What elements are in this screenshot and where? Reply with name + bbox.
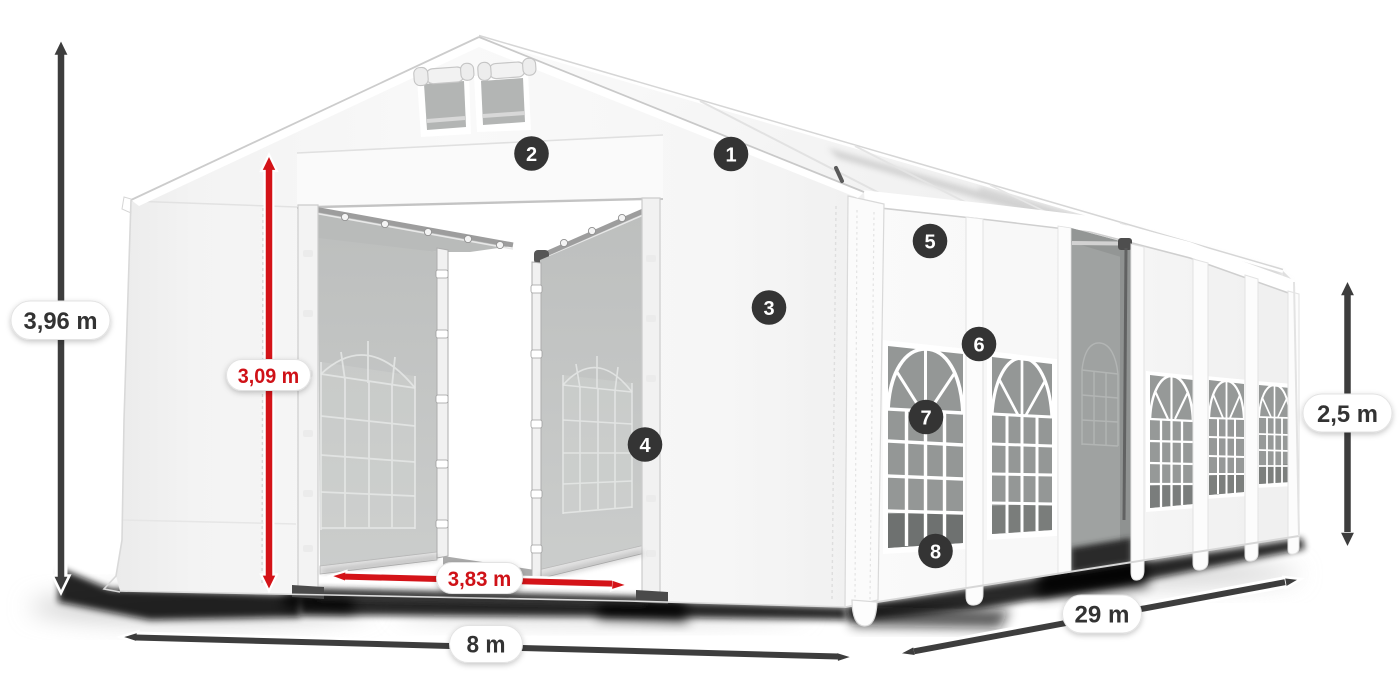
svg-text:5: 5 xyxy=(924,231,935,253)
svg-text:4: 4 xyxy=(639,435,651,457)
svg-text:3,96 m: 3,96 m xyxy=(24,308,98,335)
svg-text:3: 3 xyxy=(763,298,774,320)
svg-text:8 m: 8 m xyxy=(467,632,506,659)
svg-text:6: 6 xyxy=(973,334,984,356)
svg-text:1: 1 xyxy=(725,144,736,166)
svg-text:3,09 m: 3,09 m xyxy=(238,365,300,388)
svg-text:2: 2 xyxy=(526,144,537,166)
svg-text:8: 8 xyxy=(930,541,941,563)
svg-text:2,5 m: 2,5 m xyxy=(1317,401,1378,428)
svg-text:29 m: 29 m xyxy=(1075,601,1130,628)
svg-text:3,83 m: 3,83 m xyxy=(448,568,512,591)
svg-text:7: 7 xyxy=(920,407,931,429)
